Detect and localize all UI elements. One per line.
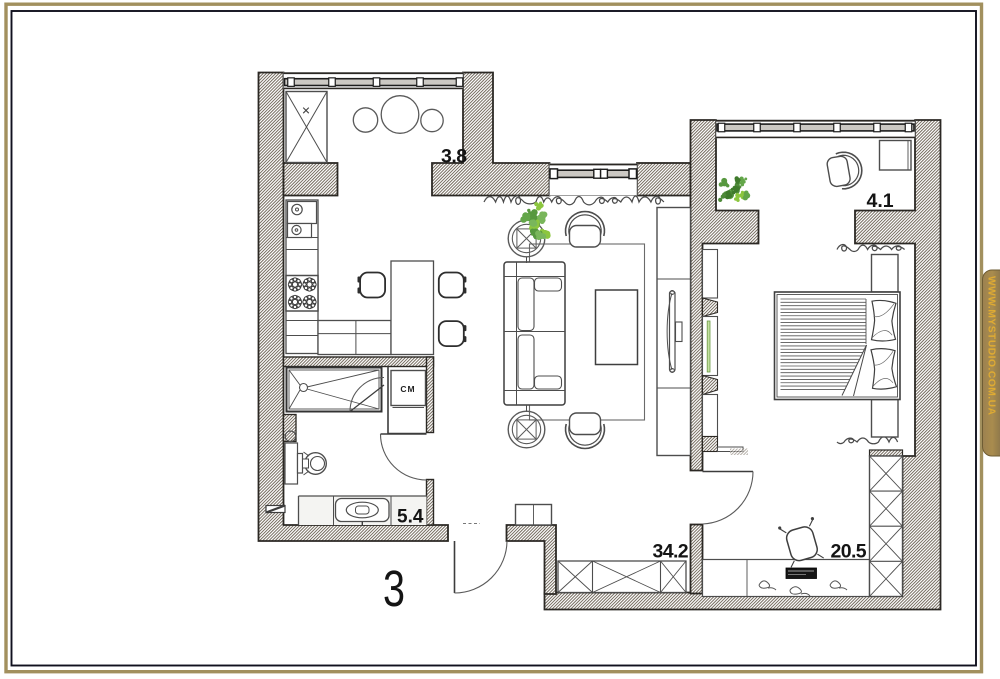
- svg-text:WWW.MYSTUDIO.COM.UA: WWW.MYSTUDIO.COM.UA: [986, 276, 997, 416]
- svg-text:5.4: 5.4: [397, 507, 424, 528]
- svg-text:20.5: 20.5: [831, 541, 867, 563]
- svg-text:34.2: 34.2: [653, 541, 689, 563]
- svg-text:4.1: 4.1: [867, 190, 894, 212]
- svg-text:3.8: 3.8: [441, 146, 467, 168]
- svg-text:CM: CM: [400, 384, 415, 394]
- svg-text:3: 3: [383, 560, 405, 617]
